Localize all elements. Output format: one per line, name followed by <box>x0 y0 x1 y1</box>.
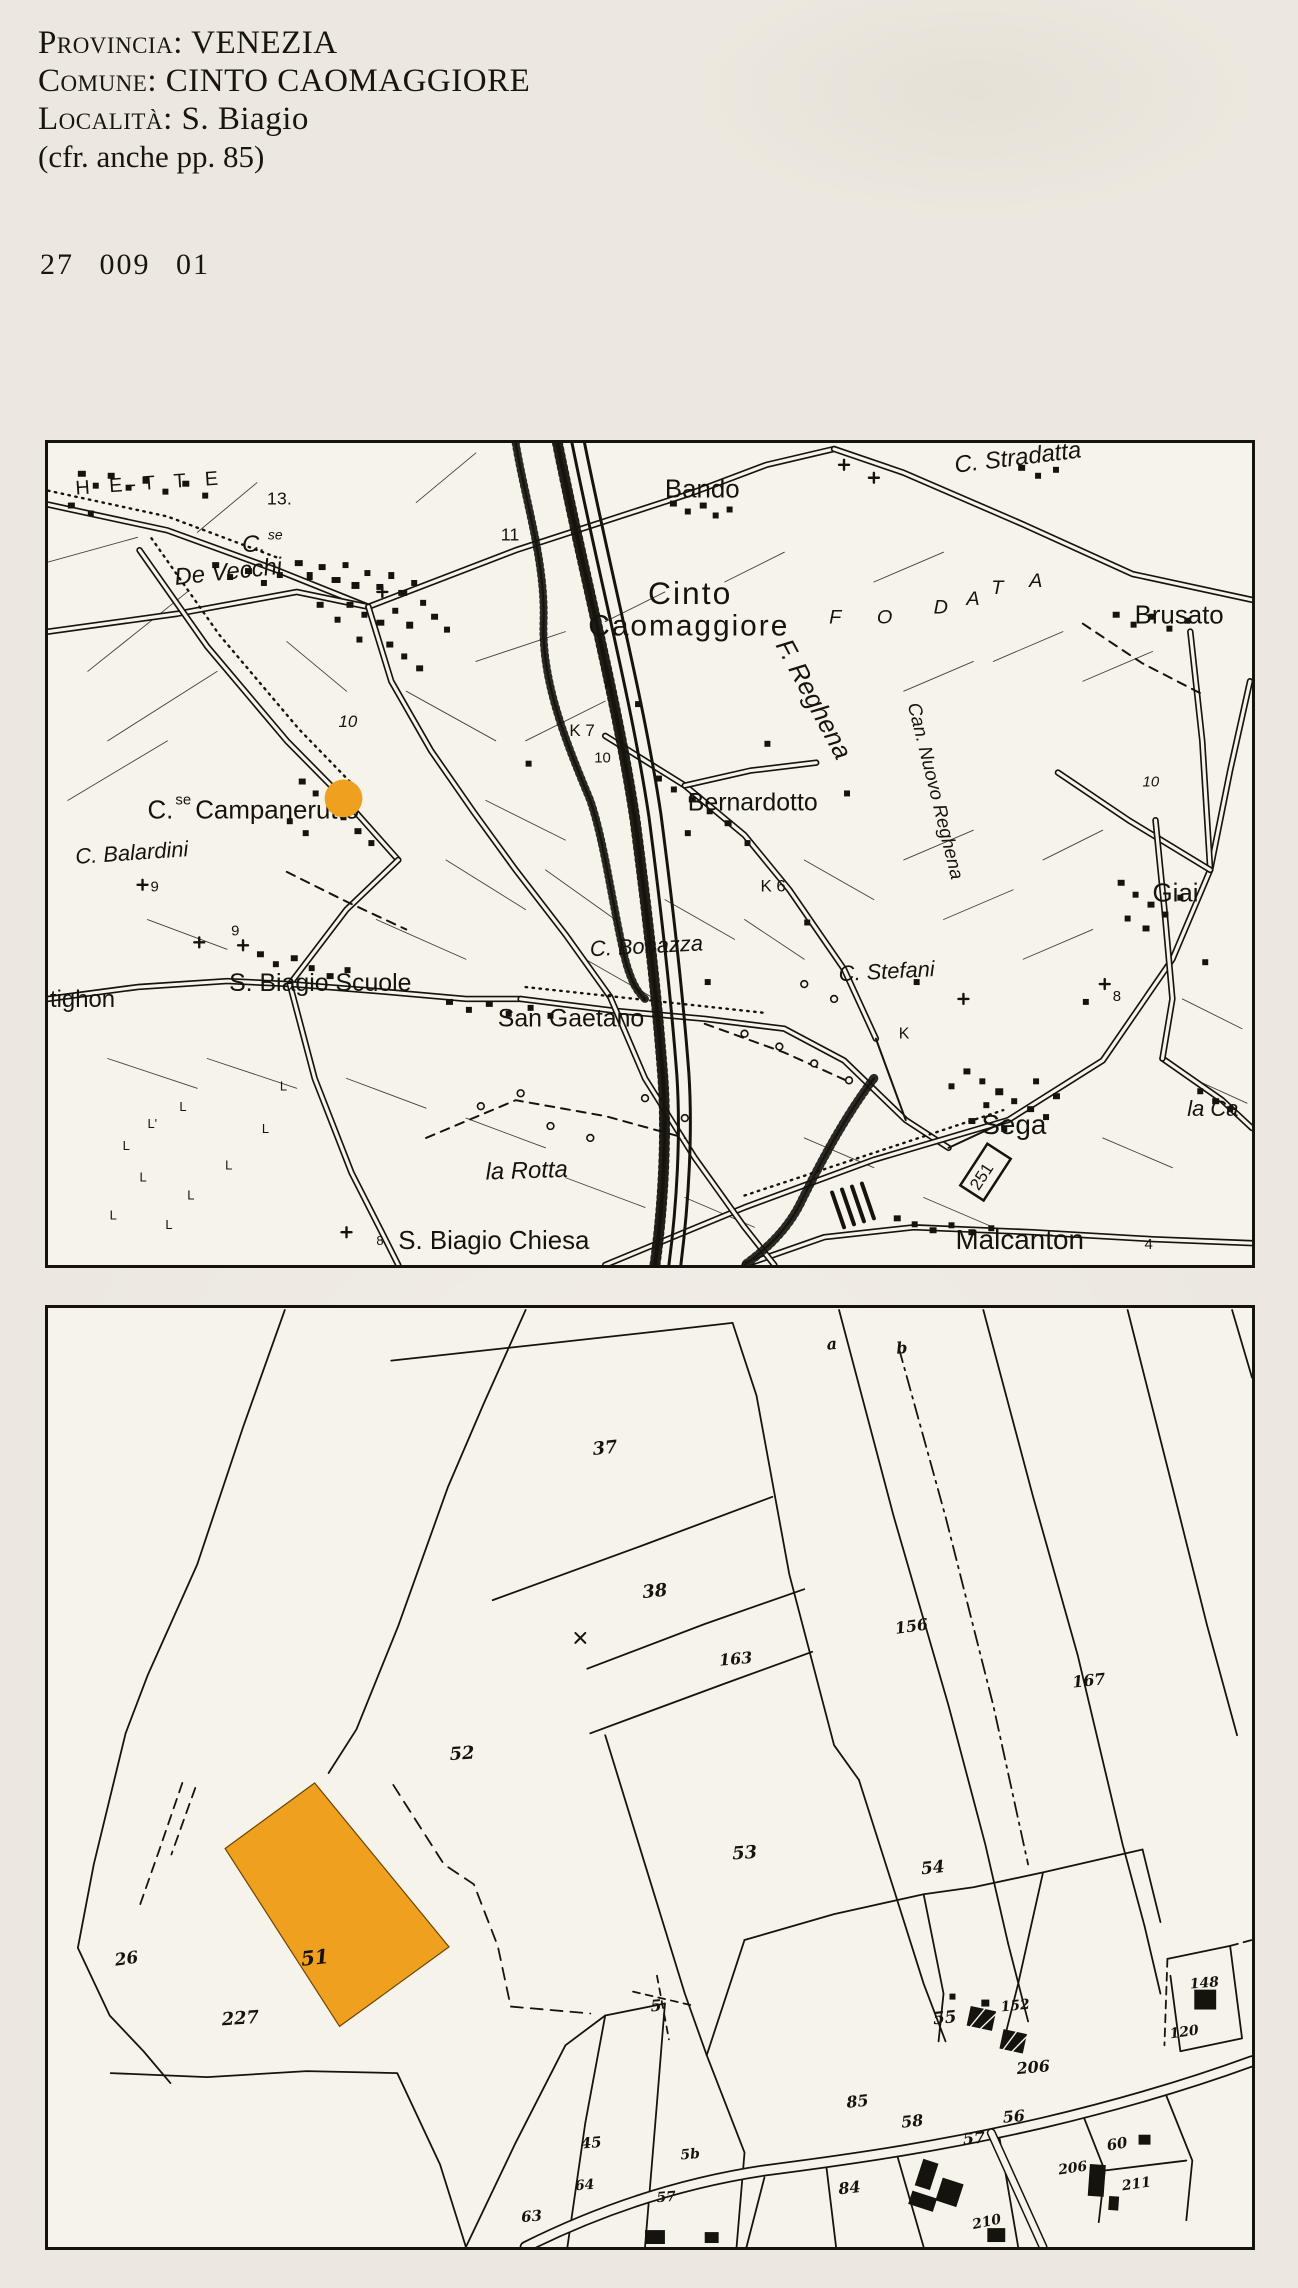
map-label: 8 <box>1113 989 1121 1005</box>
map-label: 5b <box>680 2146 701 2164</box>
map-label: 45 <box>580 2133 602 2153</box>
topographic-map: H E-T T E13.C.seDe Vecchi11BandoCintoCao… <box>45 440 1255 1268</box>
map-label: 10 <box>1143 775 1160 791</box>
map-label: 51 <box>300 1944 330 1971</box>
map-label: K 7 <box>569 721 594 740</box>
map-label: L <box>262 1121 269 1136</box>
map-label: 206 <box>1056 2159 1088 2179</box>
map-label: C. Stradatta <box>953 443 1083 479</box>
map-label: 167 <box>1071 1669 1106 1691</box>
parcel-boundaries <box>78 1310 1252 2247</box>
map-label: 4 <box>1145 1237 1153 1253</box>
map-label: 11 <box>501 524 520 544</box>
field-label-provincia: Provincia: <box>38 25 183 61</box>
map-label: Sega <box>981 1109 1047 1140</box>
map-label: L <box>140 1170 147 1185</box>
map-label: L <box>110 1207 117 1222</box>
map-label: 163 <box>718 1648 753 1670</box>
map-label: 56 <box>1002 2106 1026 2127</box>
map-label: 55 <box>932 2006 957 2028</box>
map-label: 148 <box>1189 1974 1220 1992</box>
map-label: se <box>175 792 191 808</box>
parcel-numbers: ab37381631561675253542651227555152206855… <box>112 1334 1219 2233</box>
map-label: 37 <box>592 1437 620 1461</box>
cadastral-map-canvas: ab37381631561675253542651227555152206855… <box>48 1308 1252 2247</box>
field-value-provincia: VENEZIA <box>191 25 337 61</box>
map-label: 9 <box>231 923 239 939</box>
map-label: 64 <box>574 2177 595 2195</box>
field-label-comune: Comune: <box>38 63 157 99</box>
map-label: 84 <box>837 2177 861 2198</box>
map-label: San Gaetano <box>498 1006 644 1033</box>
map-label: L <box>280 1078 287 1093</box>
locality-highlight-marker <box>325 780 363 818</box>
map-label: 13. <box>267 489 292 509</box>
field-value-localita: S. Biagio <box>182 101 309 137</box>
map-label: L <box>225 1158 232 1173</box>
map-label: C. <box>148 796 174 824</box>
header: Provincia: VENEZIA Comune: CINTO CAOMAGG… <box>38 24 530 176</box>
map-label: 52 <box>449 1742 475 1765</box>
topographic-map-canvas: H E-T T E13.C.seDe Vecchi11BandoCintoCao… <box>48 443 1252 1265</box>
map-label: 5 <box>650 1996 663 2016</box>
map-label: 60 <box>1105 2133 1129 2154</box>
map-label: Malcanton <box>955 1224 1083 1255</box>
map-label: L' <box>148 1116 158 1131</box>
field-value-comune: CINTO CAOMAGGIORE <box>166 63 530 99</box>
map-label: K 6 <box>760 877 785 896</box>
map-label: L <box>187 1187 194 1202</box>
map-label: Bando <box>665 476 740 504</box>
map-label: 152 <box>1000 1997 1031 2016</box>
map-label: T <box>991 577 1005 599</box>
map-label: Caomaggiore <box>588 610 789 643</box>
map-label: O <box>877 607 892 629</box>
map-label: 63 <box>520 2206 542 2226</box>
map-label: 53 <box>731 1842 757 1865</box>
map-label: se <box>268 526 283 542</box>
map-label: De Vecchi <box>173 553 284 591</box>
map-label: 120 <box>1169 2022 1200 2042</box>
map-label: 10 <box>339 712 358 731</box>
map-label: A <box>965 588 979 610</box>
map-label: 58 <box>900 2111 924 2132</box>
map-label: Can. Nuovo Reghena <box>903 701 967 882</box>
map-label: 156 <box>894 1614 930 1637</box>
map-label: 227 <box>220 2007 260 2031</box>
map-label: b <box>895 1338 908 1358</box>
header-line-provincia: Provincia: VENEZIA <box>38 24 530 62</box>
map-label: C. Stefani <box>838 956 936 986</box>
map-label: A <box>1028 570 1042 592</box>
map-label: Giai <box>1152 880 1198 908</box>
map-label: 211 <box>1120 2174 1152 2194</box>
map-label: F <box>829 607 843 629</box>
map-label: Bernardotto <box>688 789 818 816</box>
header-line-comune: Comune: CINTO CAOMAGGIORE <box>38 62 530 100</box>
map-label: L <box>179 1099 186 1114</box>
map-label: S. Biagio Scuole <box>229 970 411 997</box>
map-label: la Rotta <box>485 1156 568 1186</box>
map-label: la Ca <box>1187 1096 1238 1121</box>
header-line-localita: Località: S. Biagio <box>38 100 530 138</box>
map-label: 57 <box>962 2128 986 2149</box>
map-label: C. Balardini <box>74 836 190 869</box>
map-label: 85 <box>845 2091 869 2112</box>
cadastral-map: ab37381631561675253542651227555152206855… <box>45 1305 1255 2250</box>
scanned-page: { "header": { "lines": [ {"label": "Prov… <box>0 0 1298 2288</box>
cross-reference-note: (cfr. anche pp. 85) <box>38 138 530 176</box>
map-label: L <box>165 1217 172 1232</box>
map-label: tighon <box>50 986 115 1013</box>
map-label: 57 <box>656 2189 677 2207</box>
map-label: S. Biagio Chiesa <box>398 1227 590 1255</box>
rivers-and-canals <box>516 443 874 1265</box>
map-label: 206 <box>1015 2056 1051 2078</box>
sheet-code: 27 009 01 <box>40 248 210 282</box>
map-label: 9 <box>150 880 158 896</box>
map-label: 54 <box>920 1856 945 1878</box>
place-labels: H E-T T E13.C.seDe Vecchi11BandoCintoCao… <box>50 443 1238 1255</box>
map-label: a <box>826 1334 838 1354</box>
map-label: 38 <box>641 1580 669 1604</box>
map-label: F. Reghena <box>770 635 857 764</box>
map-label: L <box>123 1138 130 1153</box>
map-label: 26 <box>112 1947 139 1970</box>
map-label: D <box>934 597 948 619</box>
map-label: 8 <box>376 1233 383 1248</box>
field-label-localita: Località: <box>38 101 173 137</box>
map-label: Cinto <box>648 575 732 611</box>
map-label: K <box>899 1026 910 1043</box>
map-label: C. Bonazza <box>589 930 703 961</box>
map-label: Brusato <box>1135 602 1224 630</box>
map-label: 10 <box>594 751 611 767</box>
railway <box>557 443 690 1265</box>
